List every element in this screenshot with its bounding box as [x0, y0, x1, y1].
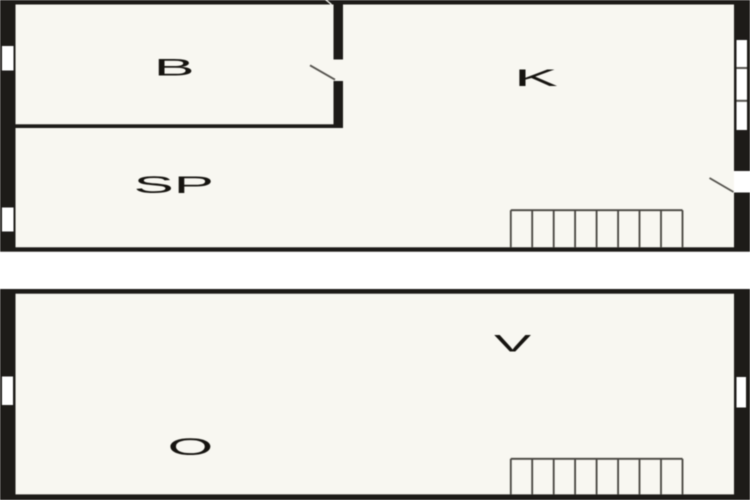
svg-text:B: B: [154, 54, 195, 81]
svg-text:O: O: [168, 434, 214, 460]
svg-text:SP: SP: [134, 172, 214, 199]
svg-text:K: K: [514, 65, 558, 91]
svg-text:V: V: [494, 330, 532, 357]
